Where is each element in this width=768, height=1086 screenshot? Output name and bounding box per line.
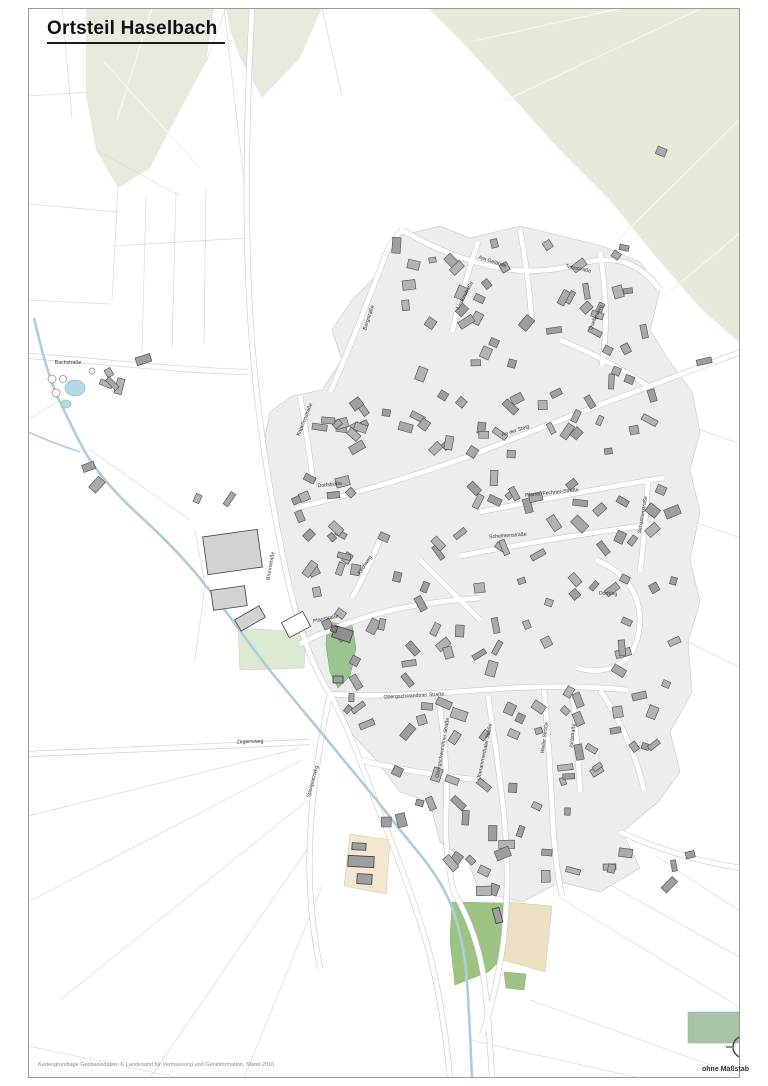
building — [312, 587, 321, 598]
building — [619, 244, 629, 252]
building — [104, 367, 114, 377]
building — [604, 448, 612, 455]
map-page: BachstraßeBergstraßeAm GeländeTannstraße… — [0, 0, 768, 1086]
building — [429, 257, 437, 263]
building — [538, 400, 547, 409]
building — [455, 625, 464, 637]
building — [223, 492, 236, 507]
page-title: Ortsteil Haselbach — [47, 18, 225, 44]
building — [618, 848, 632, 858]
building — [321, 417, 334, 424]
building-special — [333, 676, 343, 683]
building — [381, 817, 391, 827]
map-attribution: Kartengrundlage Geobasisdaten: © Landesa… — [38, 1062, 274, 1068]
building — [563, 773, 575, 779]
building — [474, 583, 486, 594]
building — [612, 706, 624, 719]
building-special — [235, 606, 266, 631]
building — [193, 493, 202, 504]
building — [541, 870, 550, 882]
pond — [61, 400, 71, 408]
building — [507, 450, 516, 458]
building — [392, 237, 402, 253]
building — [573, 499, 588, 507]
building-special — [211, 586, 247, 611]
building — [402, 300, 410, 311]
building-special — [352, 843, 366, 851]
map-canvas: BachstraßeBergstraßeAm GeländeTannstraße… — [0, 0, 768, 1086]
building — [629, 425, 639, 435]
pond — [65, 380, 85, 396]
building — [618, 640, 626, 656]
scale-note: ohne Maßstab — [702, 1066, 749, 1073]
street-label: Dorfring — [599, 591, 618, 598]
building — [608, 374, 614, 389]
building — [349, 693, 354, 701]
building — [670, 860, 677, 872]
legend-green-patch — [688, 1012, 750, 1043]
tank — [60, 376, 67, 383]
building — [462, 810, 470, 825]
village-area — [262, 226, 700, 902]
building-special — [348, 855, 375, 867]
street-label: Bachstraße — [55, 360, 82, 366]
tank — [52, 389, 60, 397]
building — [479, 431, 489, 438]
stream-tributary — [28, 432, 80, 452]
street-label: Brunnstraße — [266, 551, 277, 580]
building-special — [357, 874, 373, 885]
building-special — [203, 529, 263, 574]
building — [471, 360, 481, 366]
building — [327, 491, 340, 499]
building — [490, 470, 498, 485]
building — [541, 849, 552, 856]
tank — [48, 375, 56, 383]
building — [489, 825, 497, 840]
building — [421, 702, 433, 710]
building — [661, 876, 677, 893]
building-special — [330, 625, 338, 633]
building — [476, 886, 491, 896]
street-label: Zeglersweg — [236, 739, 263, 746]
building — [508, 783, 517, 793]
building — [402, 279, 416, 290]
building — [607, 864, 616, 874]
building — [565, 808, 571, 815]
building — [382, 409, 391, 417]
tank — [89, 368, 95, 374]
building — [623, 288, 632, 294]
building — [81, 461, 95, 472]
north-label: N — [740, 1042, 747, 1052]
building — [415, 799, 424, 807]
map-content: BachstraßeBergstraßeAm GeländeTannstraße… — [28, 8, 762, 1078]
